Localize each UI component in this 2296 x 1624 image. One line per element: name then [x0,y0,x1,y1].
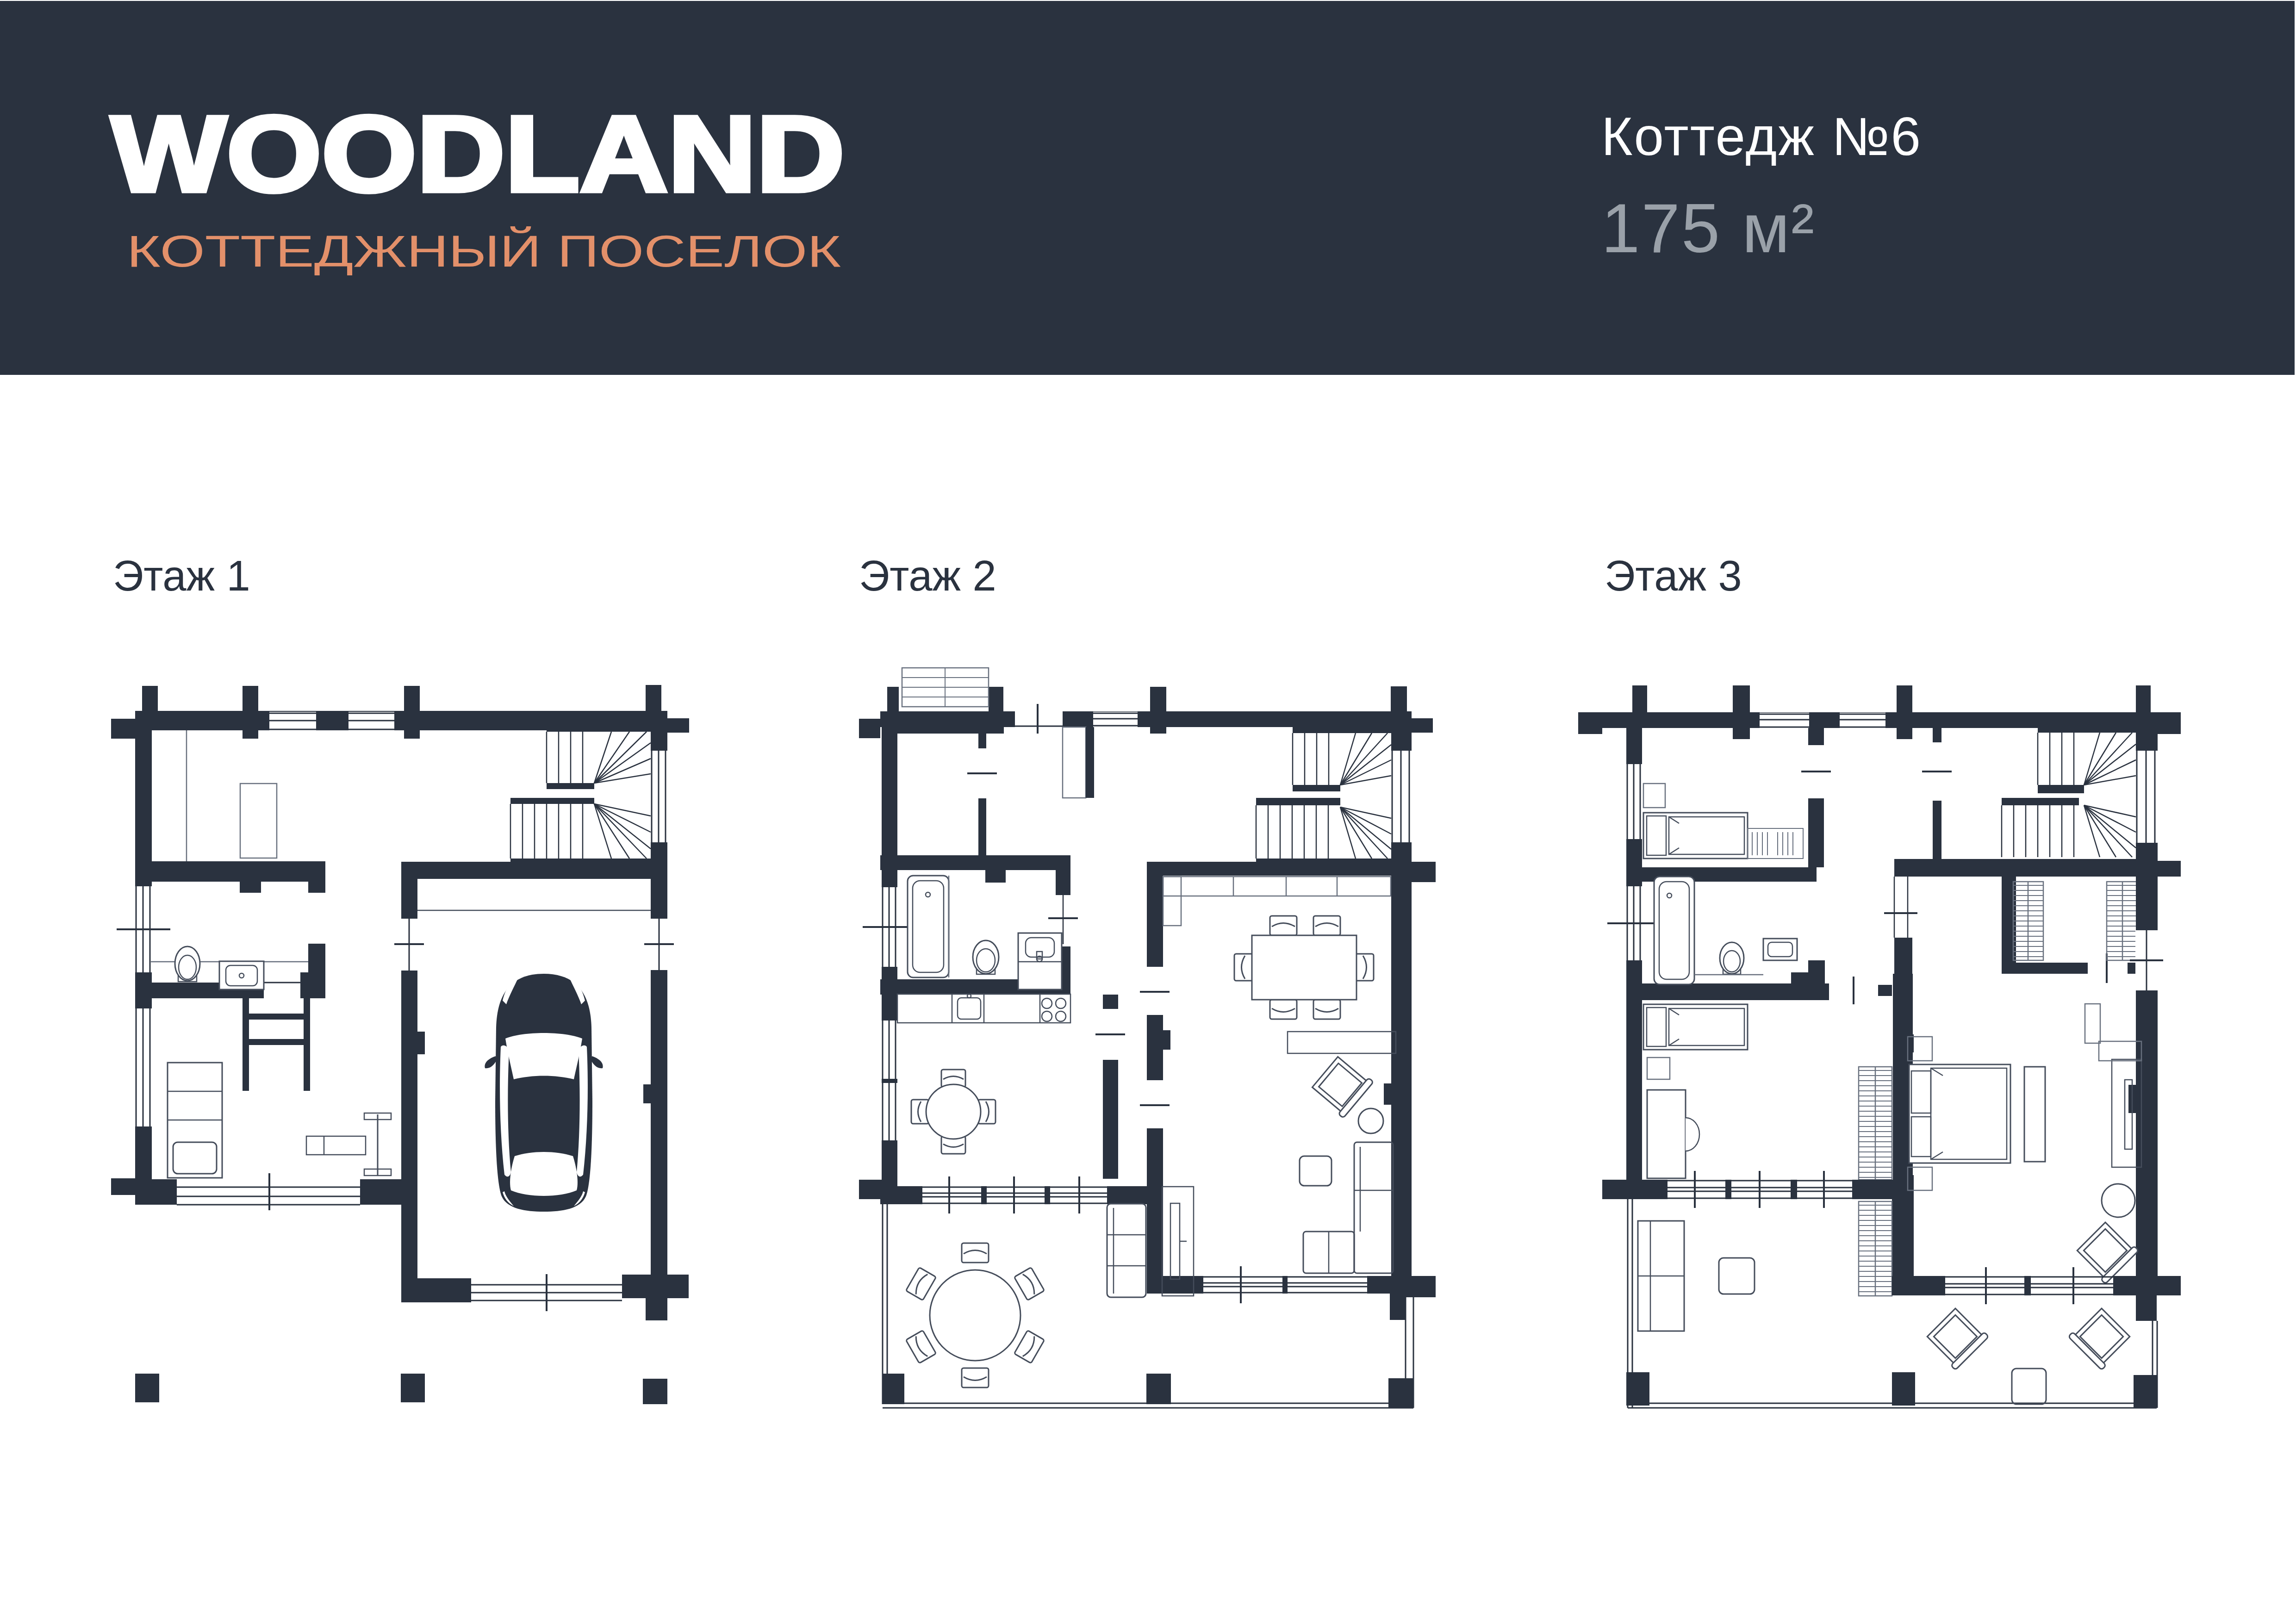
svg-text:175 м²: 175 м² [1601,189,1816,267]
svg-text:КОТТЕДЖНЫЙ ПОСЕЛОК: КОТТЕДЖНЫЙ ПОСЕЛОК [127,226,841,276]
svg-text:Этаж 3: Этаж 3 [1605,552,1742,599]
svg-text:Этаж 2: Этаж 2 [859,552,996,599]
svg-text:WOODLAND: WOODLAND [111,93,845,214]
svg-text:Этаж 1: Этаж 1 [113,552,250,599]
svg-text:Коттедж №6: Коттедж №6 [1601,106,1922,167]
